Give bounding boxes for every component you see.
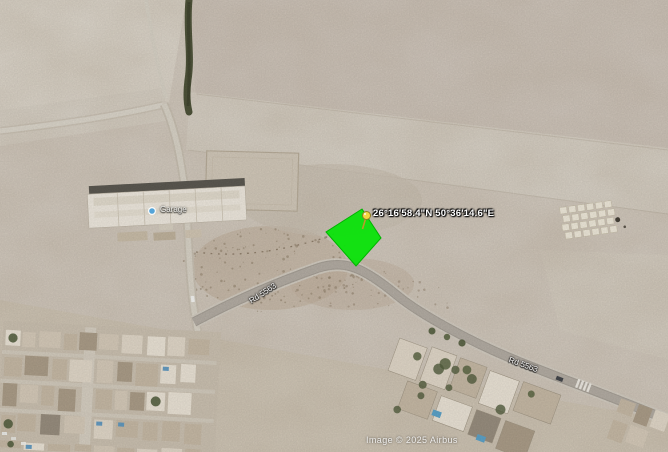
grain-light xyxy=(0,0,668,452)
satellite-map-canvas[interactable]: 26°16'58.4"N 50°36'14.6"E Rd 5563 Rd 556… xyxy=(0,0,668,452)
pushpin-head xyxy=(363,212,371,220)
pushpin-highlight xyxy=(364,213,366,215)
satellite-imagery xyxy=(0,0,668,452)
poi-marker-icon[interactable] xyxy=(148,207,156,215)
poi-dot xyxy=(149,208,155,214)
